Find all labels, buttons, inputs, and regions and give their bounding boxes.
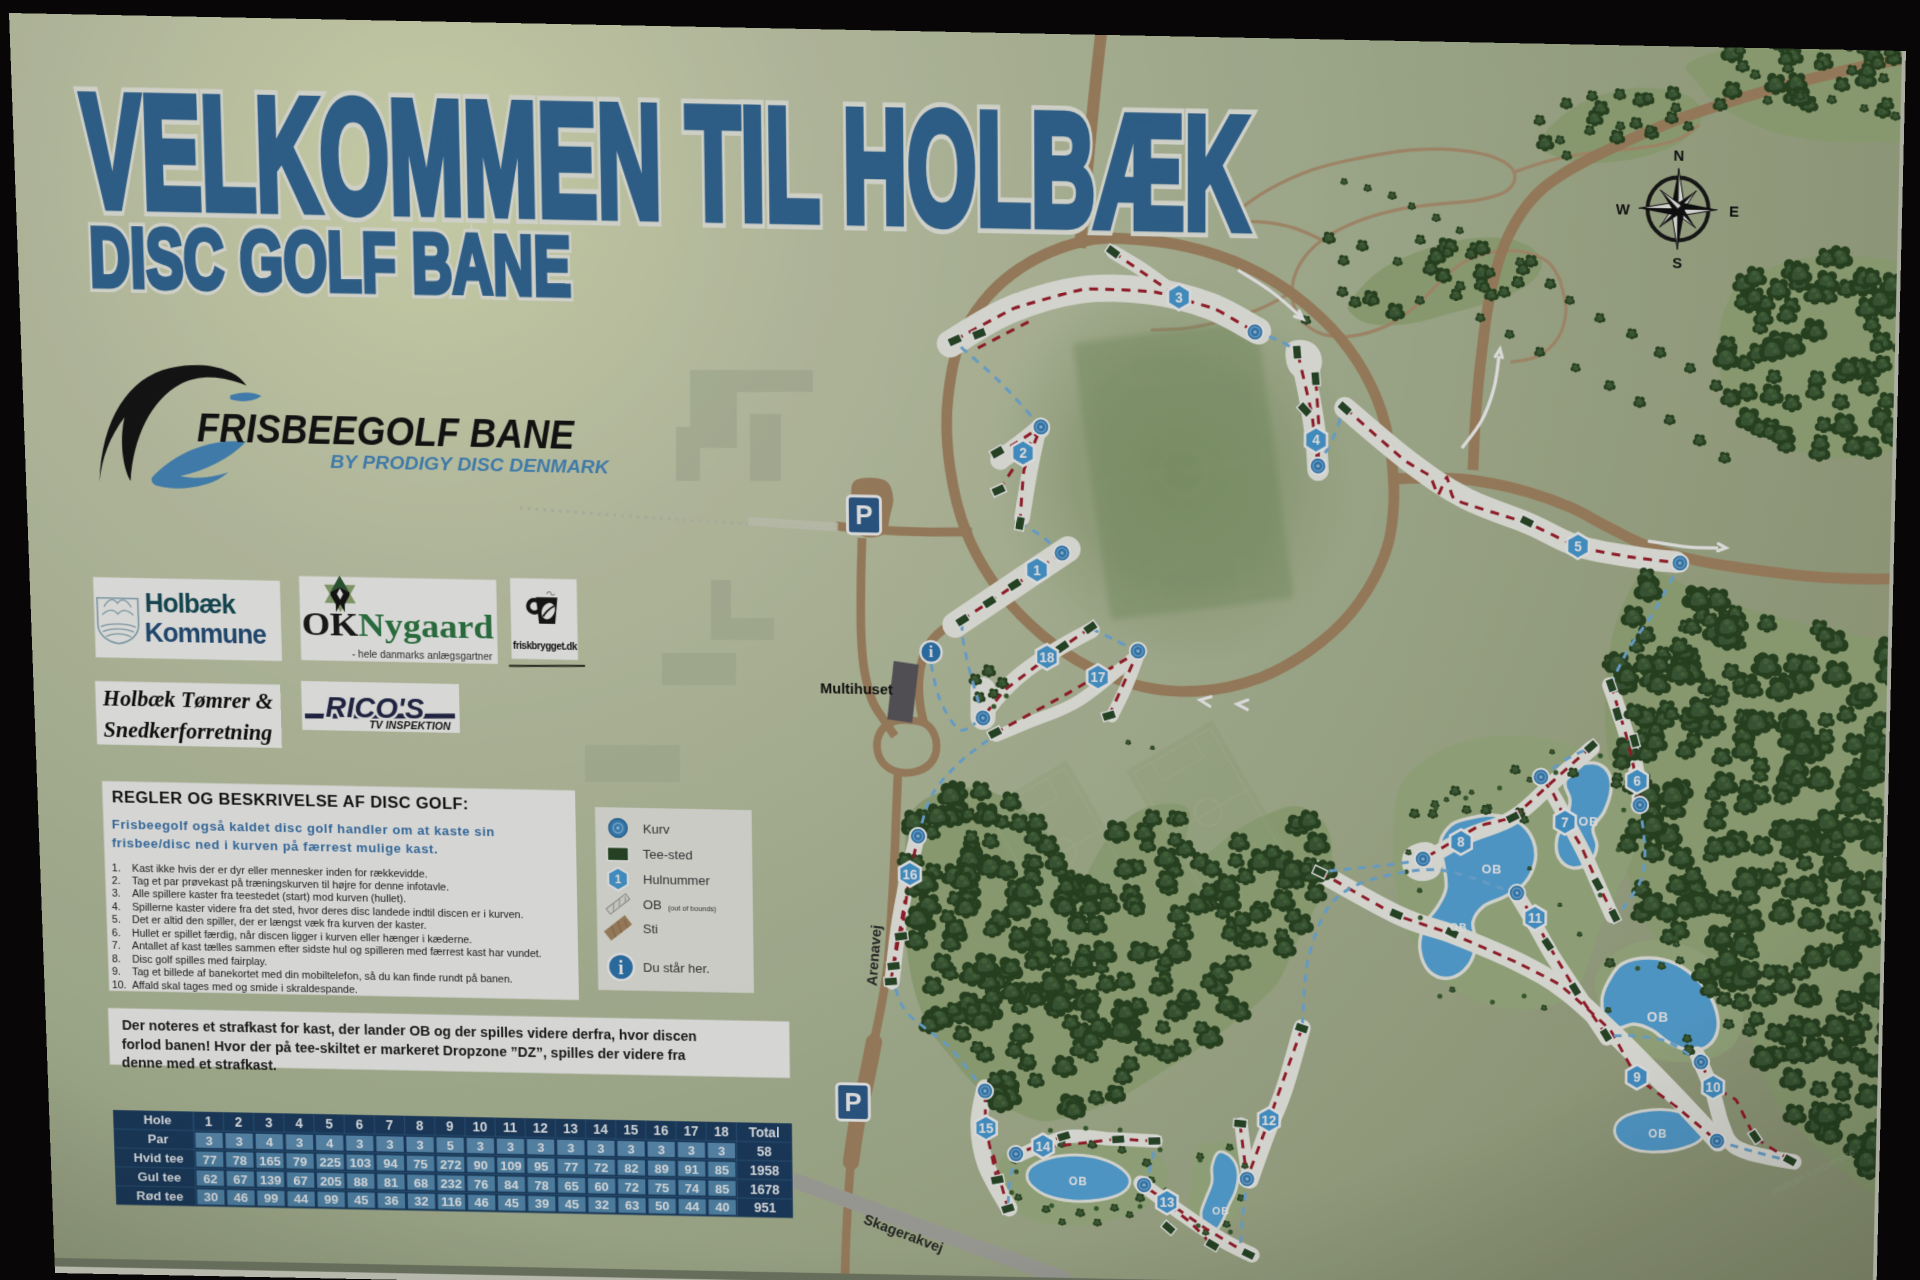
svg-text:232: 232: [440, 1176, 462, 1191]
svg-text:OB: OB: [1578, 814, 1599, 829]
svg-text:79: 79: [293, 1154, 308, 1168]
svg-text:3: 3: [296, 1135, 304, 1149]
svg-text:40: 40: [715, 1200, 729, 1214]
svg-text:OB: OB: [1647, 1009, 1669, 1025]
svg-text:12: 12: [1261, 1112, 1276, 1127]
svg-text:13: 13: [1160, 1194, 1175, 1209]
svg-text:39: 39: [535, 1197, 550, 1211]
svg-text:45: 45: [565, 1197, 580, 1211]
svg-text:3: 3: [356, 1137, 364, 1151]
svg-text:S: S: [1672, 256, 1682, 273]
svg-text:1: 1: [615, 873, 622, 887]
svg-text:5: 5: [1574, 538, 1582, 554]
svg-text:OB: OB: [1450, 922, 1468, 934]
svg-text:78: 78: [534, 1178, 549, 1192]
svg-text:103: 103: [349, 1155, 371, 1170]
svg-text:OB: OB: [1069, 1175, 1088, 1189]
svg-text:18: 18: [1039, 649, 1054, 665]
svg-text:12: 12: [533, 1120, 548, 1135]
svg-text:1: 1: [205, 1114, 213, 1129]
svg-text:P: P: [844, 1087, 861, 1117]
svg-text:1: 1: [1033, 562, 1041, 578]
svg-text:Tee-sted: Tee-sted: [643, 847, 693, 862]
svg-text:Holbæk Tømrer &: Holbæk Tømrer &: [101, 686, 273, 715]
svg-text:16: 16: [653, 1123, 668, 1138]
svg-text:67: 67: [293, 1173, 308, 1187]
svg-text:E: E: [1729, 203, 1739, 220]
svg-text:FRISBEEGOLF BANE: FRISBEEGOLF BANE: [196, 406, 576, 458]
svg-text:99: 99: [324, 1193, 339, 1207]
svg-text:62: 62: [203, 1172, 218, 1186]
svg-text:OB: OB: [1212, 1206, 1230, 1218]
svg-text:77: 77: [564, 1160, 579, 1174]
svg-text:i: i: [618, 955, 624, 978]
svg-text:7: 7: [1561, 814, 1569, 830]
svg-text:2: 2: [235, 1114, 243, 1129]
svg-text:4: 4: [295, 1116, 303, 1131]
svg-text:90: 90: [474, 1158, 489, 1172]
svg-text:951: 951: [754, 1200, 777, 1216]
svg-text:63: 63: [625, 1199, 640, 1213]
svg-text:Multihuset: Multihuset: [820, 680, 893, 698]
svg-text:16: 16: [902, 866, 917, 882]
svg-text:68: 68: [414, 1176, 429, 1190]
svg-text:44: 44: [685, 1200, 700, 1214]
svg-text:91: 91: [684, 1162, 699, 1176]
svg-text:65: 65: [564, 1179, 579, 1193]
svg-text:Rød tee: Rød tee: [136, 1189, 184, 1204]
svg-text:3: 3: [477, 1139, 485, 1153]
svg-text:4: 4: [266, 1135, 274, 1149]
svg-text:3: 3: [688, 1143, 696, 1157]
svg-text:36: 36: [384, 1194, 399, 1208]
svg-text:72: 72: [625, 1180, 640, 1194]
svg-text:89: 89: [654, 1162, 669, 1176]
svg-text:3: 3: [235, 1134, 243, 1148]
svg-text:14: 14: [1036, 1138, 1051, 1153]
svg-text:30: 30: [204, 1190, 219, 1204]
svg-text:2: 2: [1019, 445, 1027, 461]
svg-text:6: 6: [355, 1117, 363, 1132]
svg-text:W: W: [1616, 201, 1631, 218]
svg-text:94: 94: [383, 1156, 398, 1170]
svg-text:67: 67: [233, 1172, 248, 1186]
svg-text:225: 225: [319, 1155, 341, 1170]
svg-text:5: 5: [325, 1116, 333, 1131]
svg-text:3: 3: [537, 1140, 545, 1154]
svg-text:15: 15: [979, 1120, 994, 1135]
svg-text:165: 165: [259, 1154, 281, 1169]
svg-text:Kommune: Kommune: [144, 617, 267, 650]
svg-text:TV INSPEKTION: TV INSPEKTION: [369, 719, 452, 732]
svg-text:82: 82: [624, 1161, 639, 1175]
svg-text:3: 3: [507, 1140, 515, 1154]
svg-text:15: 15: [623, 1122, 638, 1137]
svg-text:81: 81: [384, 1175, 399, 1189]
svg-text:50: 50: [655, 1199, 670, 1213]
svg-text:75: 75: [413, 1157, 428, 1171]
svg-text:8: 8: [1457, 834, 1465, 850]
svg-text:46: 46: [234, 1191, 249, 1205]
svg-text:OKNygaard: OKNygaard: [301, 606, 494, 647]
svg-text:(out of bounds): (out of bounds): [668, 903, 717, 913]
svg-text:Hole: Hole: [143, 1113, 172, 1128]
svg-text:139: 139: [260, 1173, 282, 1188]
svg-text:11: 11: [1528, 910, 1543, 926]
svg-text:3: 3: [265, 1115, 273, 1130]
svg-text:3: 3: [718, 1144, 726, 1158]
svg-text:N: N: [1673, 147, 1684, 164]
svg-text:10: 10: [1705, 1079, 1720, 1094]
svg-text:OB: OB: [643, 897, 662, 912]
svg-text:4: 4: [1312, 432, 1320, 448]
svg-text:3: 3: [597, 1141, 605, 1155]
svg-text:32: 32: [595, 1198, 610, 1212]
svg-text:Sti: Sti: [643, 922, 658, 937]
svg-text:13: 13: [563, 1121, 578, 1136]
svg-text:3: 3: [567, 1141, 575, 1155]
svg-text:3: 3: [627, 1142, 635, 1156]
svg-text:18: 18: [714, 1124, 729, 1139]
svg-text:10: 10: [472, 1119, 487, 1134]
svg-text:9: 9: [446, 1119, 454, 1134]
svg-text:Snedkerforretning: Snedkerforretning: [103, 717, 273, 746]
svg-text:8: 8: [416, 1118, 424, 1133]
svg-text:45: 45: [354, 1193, 369, 1207]
svg-text:OB: OB: [1648, 1127, 1667, 1141]
svg-text:85: 85: [715, 1182, 730, 1196]
svg-text:74: 74: [685, 1181, 700, 1195]
svg-text:85: 85: [715, 1163, 730, 1177]
svg-text:76: 76: [474, 1177, 489, 1191]
svg-text:1958: 1958: [750, 1162, 780, 1178]
svg-text:Hulnummer: Hulnummer: [643, 872, 711, 888]
svg-text:P: P: [855, 500, 873, 531]
svg-text:11: 11: [503, 1120, 518, 1135]
svg-text:Du står her.: Du står her.: [643, 961, 710, 977]
svg-text:denne med et strafkast.: denne med et strafkast.: [122, 1056, 277, 1074]
svg-text:84: 84: [504, 1177, 519, 1191]
svg-text:99: 99: [264, 1192, 279, 1206]
svg-text:32: 32: [414, 1194, 429, 1208]
svg-text:44: 44: [294, 1192, 309, 1206]
svg-text:1678: 1678: [750, 1181, 780, 1197]
svg-text:46: 46: [474, 1196, 489, 1210]
svg-text:i: i: [929, 643, 934, 662]
svg-text:OB: OB: [1482, 862, 1503, 877]
svg-text:9: 9: [1633, 1069, 1641, 1084]
svg-text:77: 77: [202, 1153, 217, 1167]
svg-text:5: 5: [447, 1138, 455, 1152]
svg-text:DISC GOLF BANE: DISC GOLF BANE: [88, 209, 572, 314]
svg-text:Total: Total: [749, 1124, 780, 1140]
svg-text:3: 3: [416, 1138, 424, 1152]
svg-text:6: 6: [1633, 773, 1641, 789]
svg-text:17: 17: [1090, 669, 1105, 685]
svg-text:3: 3: [658, 1143, 666, 1157]
svg-text:Holbæk: Holbæk: [144, 588, 237, 620]
svg-text:4: 4: [326, 1136, 334, 1150]
svg-text:95: 95: [534, 1159, 549, 1173]
svg-text:45: 45: [504, 1196, 519, 1210]
svg-text:Kurv: Kurv: [643, 821, 670, 836]
svg-text:75: 75: [655, 1180, 670, 1194]
svg-text:3: 3: [386, 1137, 394, 1151]
svg-text:78: 78: [232, 1153, 247, 1167]
svg-text:7: 7: [386, 1117, 394, 1132]
svg-text:3: 3: [1175, 289, 1183, 305]
svg-text:60: 60: [594, 1179, 609, 1193]
svg-text:friskbrygget.dk: friskbrygget.dk: [513, 641, 578, 653]
svg-text:272: 272: [440, 1157, 462, 1172]
svg-text:14: 14: [593, 1121, 608, 1136]
svg-text:17: 17: [684, 1123, 699, 1138]
svg-text:109: 109: [500, 1158, 522, 1173]
svg-text:Gul tee: Gul tee: [137, 1170, 181, 1185]
svg-text:116: 116: [441, 1195, 462, 1210]
svg-text:72: 72: [594, 1160, 609, 1174]
svg-text:205: 205: [320, 1174, 342, 1189]
svg-text:3: 3: [205, 1134, 213, 1148]
svg-text:Par: Par: [147, 1132, 169, 1147]
svg-text:88: 88: [354, 1174, 369, 1188]
svg-text:58: 58: [757, 1144, 772, 1159]
svg-text:Hvid tee: Hvid tee: [133, 1151, 184, 1166]
